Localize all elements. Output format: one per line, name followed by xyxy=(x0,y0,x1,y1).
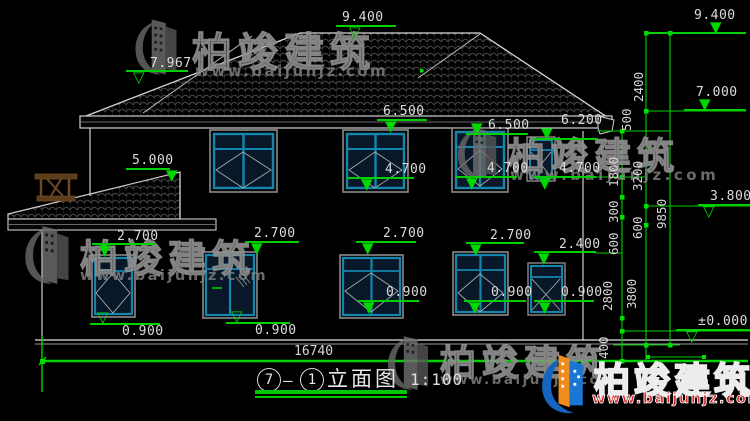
title-dash: — xyxy=(283,373,293,389)
watermark-url-text: www.baijunjz.com xyxy=(80,268,268,284)
elevation-marker-label: 0.900 xyxy=(122,325,164,338)
elevation-marker-label: 2.700 xyxy=(383,227,425,240)
title-underline-thick xyxy=(255,390,407,394)
overall-width-dimension: 16740 xyxy=(294,345,333,358)
elevation-marker-triangle-icon: ▼ xyxy=(538,251,550,265)
title-axis-circle-right: 1 xyxy=(300,368,324,392)
vertical-dimension-label: 600 xyxy=(630,196,645,260)
elevation-marker-triangle-icon: ▼ xyxy=(385,119,397,133)
elevation-marker-label: 2.700 xyxy=(117,230,159,243)
elevation-marker-label: 0.900 xyxy=(255,324,297,337)
vertical-dimension-label: 9850 xyxy=(654,182,669,246)
baijun-building-logo-icon xyxy=(538,346,594,418)
elevation-marker-label: 3.800 xyxy=(710,190,750,203)
elevation-marker-triangle-icon: ▼ xyxy=(251,241,263,255)
elevation-marker-label: 7.967 xyxy=(150,57,192,70)
vertical-dimension-label: 3800 xyxy=(624,262,639,326)
elevation-marker-label: 6.500 xyxy=(488,119,530,132)
elevation-marker-triangle-icon: ▼ xyxy=(361,177,373,191)
elevation-marker-line xyxy=(348,177,414,179)
elevation-marker-label: 0.900 xyxy=(491,286,533,299)
cad-elevation-drawing: 柏竣建筑 www.baijunjz.com 柏竣建筑 www.baijunjz.… xyxy=(0,0,750,421)
vertical-dimension-label: 500 xyxy=(619,88,634,152)
elevation-marker-label: 4.700 xyxy=(385,163,427,176)
wood-ornament xyxy=(35,174,77,201)
elevation-marker-label: 2.700 xyxy=(490,229,532,242)
elevation-marker-label: ±0.000 xyxy=(698,315,748,328)
drawing-title: 立面图 xyxy=(327,368,399,390)
elevation-marker-triangle-icon: ▼ xyxy=(710,20,722,34)
window xyxy=(343,130,408,192)
elevation-marker-line xyxy=(336,25,396,27)
elevation-marker-line xyxy=(684,109,746,111)
title-underline-thin xyxy=(255,396,407,398)
elevation-marker-triangle-icon: ▽ xyxy=(349,25,361,39)
elevation-marker-label: 4.700 xyxy=(559,162,601,175)
elevation-marker-triangle-icon: ▼ xyxy=(363,300,375,314)
baijun-building-logo-icon xyxy=(20,222,76,288)
elevation-marker-triangle-icon: ▽ xyxy=(133,70,145,84)
elevation-marker-triangle-icon: ▼ xyxy=(699,97,711,111)
elevation-marker-triangle-icon: ▼ xyxy=(541,126,553,140)
elevation-marker-triangle-icon: ▼ xyxy=(466,176,478,190)
watermark-url-text: www.baijunjz.com xyxy=(195,62,388,80)
elevation-marker-triangle-icon: ▼ xyxy=(166,168,178,182)
vertical-dimension-label: 400 xyxy=(596,316,611,380)
elevation-marker-triangle-icon: ▼ xyxy=(539,300,551,314)
title-axis-circle-left: 7 xyxy=(257,368,281,392)
elevation-marker-line xyxy=(455,176,517,178)
elevation-marker-triangle-icon: ▼ xyxy=(539,176,551,190)
elevation-marker-triangle-icon: ▼ xyxy=(471,121,483,135)
elevation-marker-triangle-icon: ▼ xyxy=(469,300,481,314)
elevation-marker-label: 0.900 xyxy=(386,286,428,299)
elevation-marker-triangle-icon: ▼ xyxy=(362,241,374,255)
elevation-marker-label: 0.900 xyxy=(561,286,603,299)
elevation-marker-triangle-icon: ▽ xyxy=(97,310,109,324)
elevation-marker-triangle-icon: ▽ xyxy=(231,309,243,323)
brand-logo-url: www.baijunjz.com xyxy=(592,391,750,407)
elevation-marker-line xyxy=(126,168,170,170)
elevation-marker-triangle-icon: ▽ xyxy=(703,204,715,218)
elevation-marker-triangle-icon: ▽ xyxy=(686,329,698,343)
elevation-marker-triangle-icon: ▼ xyxy=(470,242,482,256)
elevation-marker-label: 6.200 xyxy=(561,114,603,127)
drawing-scale: 1:100 xyxy=(410,372,463,388)
elevation-marker-triangle-icon: ▼ xyxy=(99,243,111,257)
window xyxy=(210,130,277,192)
elevation-marker-line xyxy=(646,32,746,34)
elevation-marker-label: 4.700 xyxy=(487,162,529,175)
elevation-marker-label: 2.400 xyxy=(559,238,601,251)
